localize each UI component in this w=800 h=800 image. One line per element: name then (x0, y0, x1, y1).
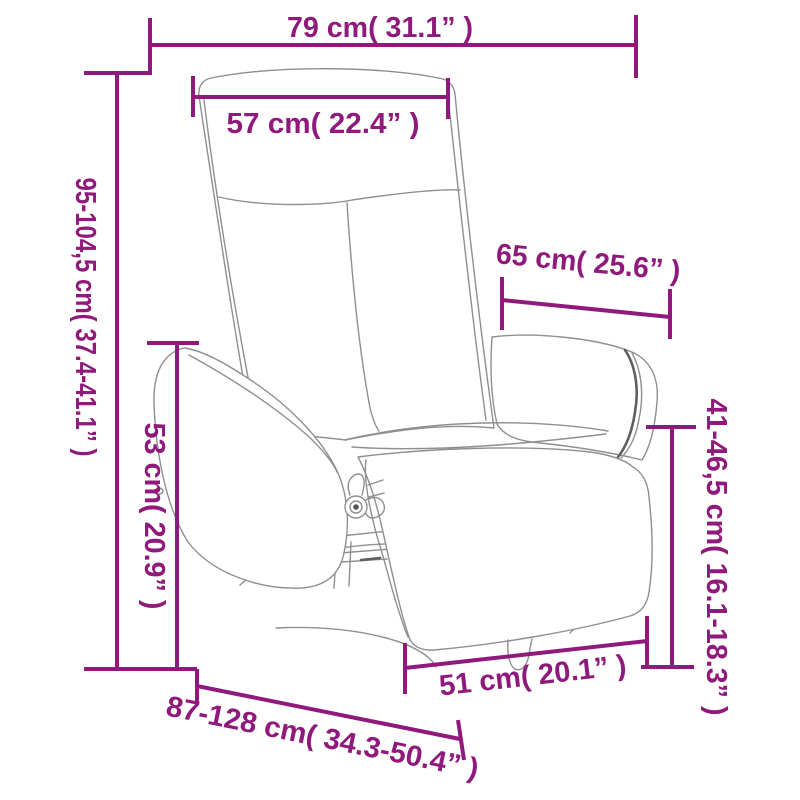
label-height-footrest: 41-46,5 cm( 16.1-18.3” ) (700, 399, 732, 716)
label-width-seatback: 65 cm( 25.6” ) (495, 238, 682, 288)
footrest (358, 448, 652, 670)
dim-width-seatback (502, 277, 670, 339)
product-dimension-diagram: 79 cm( 31.1” ) 57 cm( 22.4” ) 95-104,5 c… (0, 0, 800, 800)
label-width-overall: 79 cm( 31.1” ) (287, 12, 473, 44)
right-armrest (491, 335, 657, 460)
label-depth-overall: 87-128 cm( 34.3-50.4” ) (163, 691, 481, 786)
label-width-backrest: 57 cm( 22.4” ) (227, 108, 420, 140)
dimension-diagram-svg: 79 cm( 31.1” ) 57 cm( 22.4” ) 95-104,5 c… (0, 0, 800, 800)
recliner-line-drawing (154, 69, 657, 670)
label-width-footrest: 51 cm( 20.1” ) (438, 649, 628, 702)
label-height-overall: 95-104,5 cm( 37.4-41.1” ) (69, 178, 101, 457)
label-height-armrest: 53 cm( 20.9” ) (138, 423, 170, 610)
